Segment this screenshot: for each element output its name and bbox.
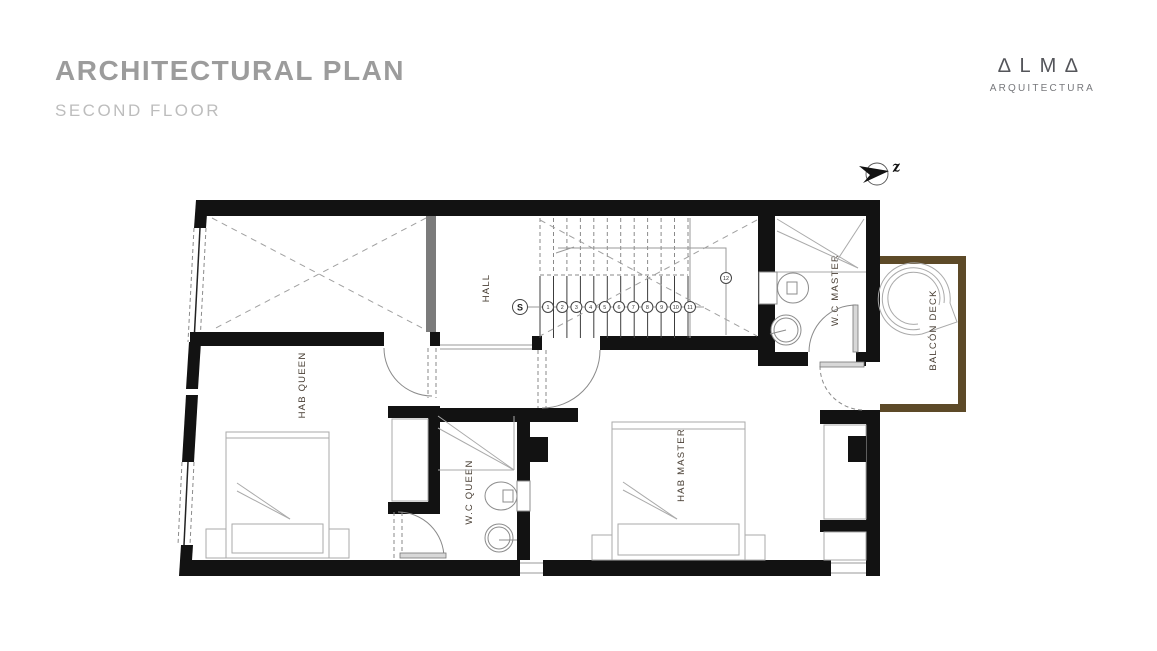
wc-master-room: W.C MASTER (758, 216, 866, 366)
hab-master-label: HAB MASTER (676, 428, 687, 502)
svg-text:10: 10 (673, 305, 679, 311)
wc-queen-label: W.C QUEEN (464, 459, 475, 524)
wc-master-sink-icon (770, 315, 801, 345)
hab-queen-label: HAB QUEEN (297, 352, 308, 419)
wc-master-toilet-icon (759, 272, 809, 304)
wc-queen-room: W.C QUEEN (437, 408, 578, 560)
north-arrow-icon: z (859, 159, 903, 185)
wc-queen-door (394, 512, 446, 558)
stairs: S 1 2 3 4 5 6 7 8 9 10 11 12 (513, 218, 759, 350)
stair-start-label: S (517, 303, 523, 313)
balcon-deck-label: BALCÓN DECK (928, 289, 939, 370)
svg-text:6: 6 (618, 305, 621, 311)
hab-queen-room: HAB QUEEN (206, 352, 440, 558)
svg-text:1: 1 (547, 305, 550, 311)
wc-queen-shower (438, 416, 514, 470)
void-room (190, 216, 440, 346)
balcony-deck: BALCÓN DECK (878, 256, 966, 412)
hab-master-room: HAB MASTER (592, 410, 880, 560)
hab-queen-door (384, 348, 436, 398)
floor-plan: z (0, 0, 1157, 651)
hab-master-door (538, 350, 600, 408)
queen-bed (206, 432, 349, 558)
svg-text:7: 7 (632, 305, 635, 311)
wc-master-label: W.C MASTER (830, 254, 841, 326)
svg-text:8: 8 (646, 305, 649, 311)
svg-text:9: 9 (660, 305, 663, 311)
svg-text:11: 11 (687, 305, 693, 311)
wc-master-shower (775, 219, 866, 272)
svg-text:5: 5 (603, 305, 606, 311)
balcony-door (820, 362, 864, 410)
wc-queen-toilet-icon (485, 481, 530, 511)
page: ARCHITECTURAL PLAN SECOND FLOOR ∆LM∆ ARQ… (0, 0, 1157, 651)
svg-text:12: 12 (723, 276, 729, 282)
svg-text:4: 4 (589, 305, 592, 311)
queen-closet (388, 406, 440, 514)
svg-text:2: 2 (561, 305, 564, 311)
hall-label: HALL (481, 274, 492, 303)
north-label: z (890, 159, 903, 176)
svg-text:3: 3 (575, 305, 578, 311)
wc-queen-sink-icon (485, 524, 517, 552)
balcony-chair (878, 263, 957, 335)
stair-treads-upper (540, 218, 688, 274)
